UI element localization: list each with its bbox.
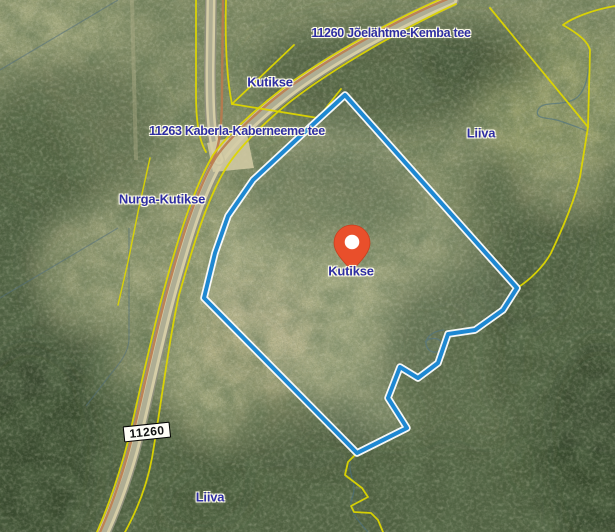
road-number-text: 11260 [129, 423, 165, 441]
location-marker[interactable] [332, 224, 372, 272]
aerial-basemap [0, 0, 615, 532]
map-pin-icon [332, 224, 372, 272]
map-viewport[interactable]: 11260 Jõelähtme-Kemba tee Kutikse 11263 … [0, 0, 615, 532]
